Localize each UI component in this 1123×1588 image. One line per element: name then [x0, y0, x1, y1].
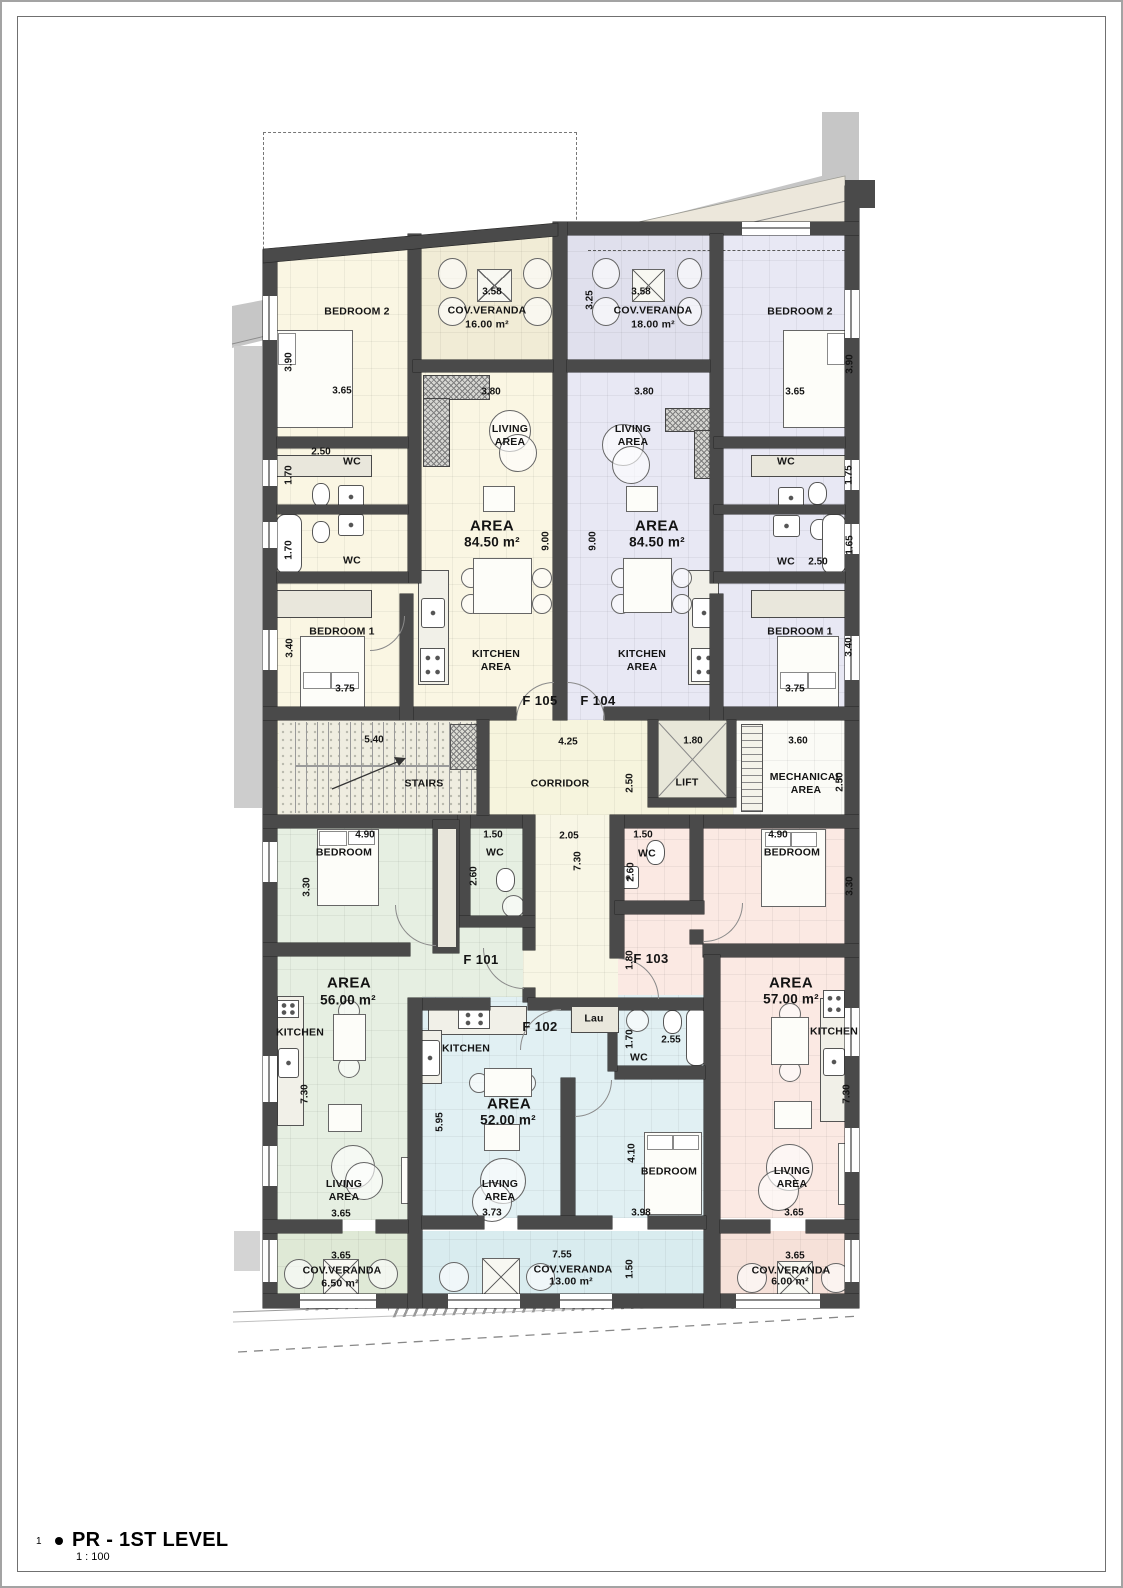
- dimension-label: 9.00: [541, 531, 552, 550]
- room-label-lift: LIFT: [676, 776, 699, 789]
- room-label-wc: WC: [777, 455, 795, 468]
- parapet-block: [845, 180, 875, 208]
- dimension-label: 3.30: [302, 877, 313, 896]
- dimension-label: 1.50: [625, 1259, 636, 1278]
- dimension-label: 1.50: [483, 830, 502, 841]
- dimension-label: 3.40: [844, 637, 855, 656]
- apartment-id-f102: F 102: [522, 1019, 557, 1035]
- dimension-label: 1.70: [284, 540, 295, 559]
- room-label-kitchen: KITCHEN: [442, 1042, 490, 1055]
- room-label-bedroom: BEDROOM: [641, 1165, 697, 1178]
- dimension-label: 3.40: [285, 638, 296, 657]
- dimension-label: 3.58: [482, 287, 501, 298]
- room-label-wc: WC: [630, 1051, 648, 1064]
- dimension-label: 3.90: [284, 352, 295, 371]
- area-value: 57.00 m²: [763, 992, 819, 1009]
- room-label-corridor: CORRIDOR: [531, 777, 590, 790]
- dimension-label: 1.70: [284, 465, 295, 484]
- dimension-label: 3.80: [634, 387, 653, 398]
- stairs-arrowhead: [394, 757, 406, 766]
- room-label-mechanical: MECHANICAL AREA: [770, 771, 843, 797]
- dimension-label: 1.80: [625, 950, 636, 969]
- room-label-laundry: Lau: [584, 1012, 603, 1025]
- room-label-wc: WC: [486, 846, 504, 859]
- room-label-wc: WC: [343, 455, 361, 468]
- dimension-label: 3.73: [482, 1208, 501, 1219]
- dimension-label: 2.60: [626, 862, 637, 881]
- room-label-wc: WC: [777, 555, 795, 568]
- area-title: AREA: [635, 518, 679, 537]
- dimension-label: 1.70: [625, 1029, 636, 1048]
- sloped-top-wall: [263, 223, 558, 263]
- dimension-label: 1.50: [633, 830, 652, 841]
- dimension-label: 3.65: [331, 1251, 350, 1262]
- room-label-stairs: STAIRS: [405, 777, 444, 790]
- area-title: AREA: [487, 1096, 531, 1115]
- drawing-number: 1: [36, 1536, 42, 1547]
- area-value: 84.50 m²: [464, 535, 520, 552]
- dimension-label: 2.50: [625, 773, 636, 792]
- dimension-label: 7.30: [573, 851, 584, 870]
- area-title: AREA: [327, 975, 371, 994]
- room-label-kitchen: KITCHEN: [276, 1026, 324, 1039]
- room-label-veranda: COV.VERANDA: [303, 1264, 382, 1277]
- room-label-wc: WC: [638, 847, 656, 860]
- dimension-label: 2.50: [311, 447, 330, 458]
- room-label-kitchen: KITCHEN: [810, 1025, 858, 1038]
- dimension-label: 3.65: [784, 1208, 803, 1219]
- dimension-label: 4.25: [558, 737, 577, 748]
- room-label-veranda: COV.VERANDA: [448, 304, 527, 317]
- apartment-id-f104: F 104: [580, 693, 615, 709]
- veranda-area-value: 16.00 m²: [465, 318, 509, 331]
- dimension-label: 4.90: [355, 830, 374, 841]
- dimension-label: 3.65: [785, 1251, 804, 1262]
- area-title: AREA: [470, 518, 514, 537]
- dimension-label: 3.98: [631, 1208, 650, 1219]
- veranda-area-value: 13.00 m²: [549, 1275, 593, 1288]
- room-label-living: LIVING AREA: [615, 423, 651, 449]
- dimension-label: 2.05: [559, 831, 578, 842]
- room-label-bedroom1: BEDROOM 1: [309, 625, 374, 638]
- dimension-label: 3.75: [785, 684, 804, 695]
- dimension-label: 3.65: [331, 1209, 350, 1220]
- dimension-label: 5.40: [364, 735, 383, 746]
- dimension-label: 7.30: [300, 1084, 311, 1103]
- veranda-area-value: 18.00 m²: [631, 318, 675, 331]
- drawing-scale: 1 : 100: [76, 1551, 110, 1563]
- dimension-label: 3.25: [585, 290, 596, 309]
- room-label-living: LIVING AREA: [326, 1178, 362, 1204]
- room-label-bedroom1: BEDROOM 1: [767, 625, 832, 638]
- drawing-title: PR - 1ST LEVEL: [72, 1529, 228, 1552]
- dimension-label: 4.10: [627, 1143, 638, 1162]
- dimension-label: 5.95: [435, 1112, 446, 1131]
- apartment-id-f101: F 101: [463, 952, 498, 968]
- room-label-kitchen: KITCHEN AREA: [472, 648, 520, 674]
- dimension-label: 3.90: [845, 354, 856, 373]
- room-label-bedroom2: BEDROOM 2: [767, 305, 832, 318]
- veranda-area-value: 6.50 m²: [321, 1277, 359, 1290]
- dimension-label: 3.65: [785, 387, 804, 398]
- apartment-id-f105: F 105: [522, 693, 557, 709]
- dimension-label: 7.30: [842, 1084, 853, 1103]
- dimension-label: 3.58: [631, 287, 650, 298]
- bullet-icon: [55, 1537, 63, 1545]
- room-label-bedroom: BEDROOM: [316, 846, 372, 859]
- area-title: AREA: [769, 975, 813, 994]
- stairs-direction-arrow: [332, 760, 402, 789]
- dimension-label: 4.90: [768, 830, 787, 841]
- dimension-label: 1.75: [844, 465, 855, 484]
- plan-overlay-graphics: [0, 0, 1123, 1588]
- dimension-label: 2.60: [469, 866, 480, 885]
- dimension-label: 7.55: [552, 1250, 571, 1261]
- room-label-living: LIVING AREA: [482, 1178, 518, 1204]
- dimension-label: 2.50: [835, 772, 846, 791]
- dimension-label: 3.75: [335, 684, 354, 695]
- room-label-veranda: COV.VERANDA: [614, 304, 693, 317]
- room-label-living: LIVING AREA: [492, 423, 528, 449]
- room-label-wc: WC: [343, 554, 361, 567]
- apartment-id-f103: F 103: [633, 951, 668, 967]
- room-label-living: LIVING AREA: [774, 1165, 810, 1191]
- dimension-label: 9.00: [588, 531, 599, 550]
- dimension-label: 3.60: [788, 736, 807, 747]
- veranda-area-value: 6.00 m²: [771, 1275, 809, 1288]
- drawing-sheet: BEDROOM 2 3.90 3.65 COV.VERANDA 16.00 m²…: [0, 0, 1123, 1588]
- dimension-label: 3.30: [845, 876, 856, 895]
- dimension-label: 3.80: [481, 387, 500, 398]
- dimension-label: 3.65: [332, 386, 351, 397]
- dimension-label: 1.65: [845, 535, 856, 554]
- room-label-bedroom: BEDROOM: [764, 846, 820, 859]
- area-value: 52.00 m²: [480, 1113, 536, 1130]
- dimension-label: 1.80: [683, 736, 702, 747]
- dimension-label: 2.50: [808, 557, 827, 568]
- room-label-bedroom2: BEDROOM 2: [324, 305, 389, 318]
- area-value: 56.00 m²: [320, 993, 376, 1010]
- area-value: 84.50 m²: [629, 535, 685, 552]
- room-label-kitchen: KITCHEN AREA: [618, 648, 666, 674]
- dimension-label: 2.55: [661, 1035, 680, 1046]
